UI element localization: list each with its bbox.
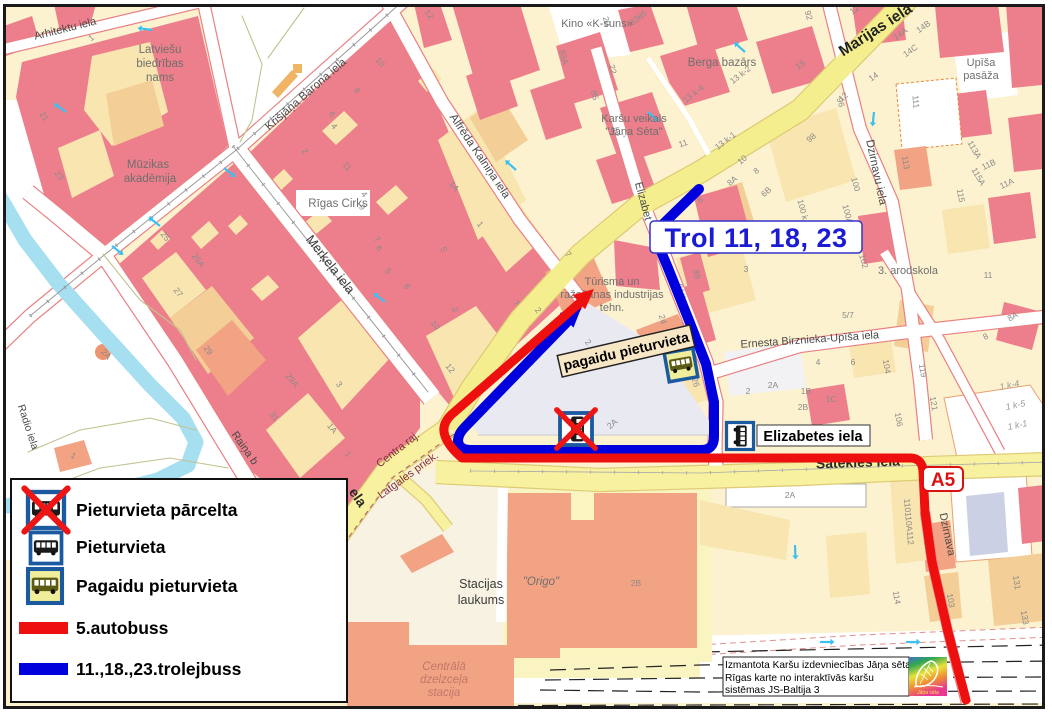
svg-text:4: 4	[816, 357, 821, 367]
svg-text:1C: 1C	[826, 394, 837, 404]
svg-text:2B: 2B	[631, 578, 642, 588]
svg-text:Kino «K-suns»: Kino «K-suns»	[561, 18, 633, 30]
svg-text:A5: A5	[931, 470, 956, 491]
svg-text:111: 111	[910, 95, 921, 109]
svg-text:Karšu veikals: Karšu veikals	[601, 113, 667, 125]
svg-text:Trol 11, 18, 23: Trol 11, 18, 23	[664, 223, 847, 253]
svg-text:11.,18.,23.trolejbuss: 11.,18.,23.trolejbuss	[76, 659, 242, 679]
svg-text:sistēmas JS-Baltija 3: sistēmas JS-Baltija 3	[725, 685, 820, 696]
svg-text:pasāža: pasāža	[963, 70, 999, 82]
svg-text:Pieturvieta: Pieturvieta	[76, 537, 166, 557]
svg-text:2B: 2B	[798, 402, 809, 412]
svg-text:Tūrisma un: Tūrisma un	[584, 276, 639, 288]
svg-text:Upīša: Upīša	[967, 57, 997, 69]
svg-text:6: 6	[851, 357, 856, 367]
svg-text:biedrības: biedrības	[136, 58, 184, 70]
svg-text:Stacijas: Stacijas	[459, 577, 503, 591]
svg-text:Rīgas Cirks: Rīgas Cirks	[308, 198, 368, 210]
svg-text:5/7: 5/7	[842, 310, 854, 320]
svg-text:Rīgas karte no interaktīvās ka: Rīgas karte no interaktīvās karšu	[725, 673, 874, 684]
svg-text:1B: 1B	[801, 386, 812, 396]
svg-text:stacija: stacija	[428, 687, 461, 699]
svg-text:Berga bazārs: Berga bazārs	[688, 57, 757, 69]
svg-text:Jāņa sēta: Jāņa sēta	[916, 690, 939, 696]
svg-text:nams: nams	[146, 72, 174, 84]
svg-text:2: 2	[746, 386, 751, 396]
svg-text:"Origo": "Origo"	[523, 576, 560, 588]
svg-text:dzelzceļa: dzelzceļa	[420, 674, 468, 686]
svg-text:Centrālā: Centrālā	[422, 661, 465, 673]
svg-text:5.autobuss: 5.autobuss	[76, 618, 169, 638]
svg-text:11: 11	[984, 270, 993, 280]
svg-text:Latviešu: Latviešu	[139, 44, 182, 56]
svg-text:Izmantota Karšu izdevniecības: Izmantota Karšu izdevniecības Jāņa sēta	[725, 660, 911, 671]
svg-text:Pagaidu pieturvieta: Pagaidu pieturvieta	[76, 576, 238, 596]
svg-text:Mūzikas: Mūzikas	[127, 159, 169, 171]
svg-text:laukums: laukums	[458, 593, 505, 607]
svg-text:tehn.: tehn.	[600, 302, 624, 314]
svg-text:2A: 2A	[768, 380, 779, 390]
svg-text:Pieturvieta pārcelta: Pieturvieta pārcelta	[76, 500, 238, 520]
svg-text:3: 3	[744, 264, 749, 274]
svg-text:3. arodskola: 3. arodskola	[878, 265, 939, 277]
svg-text:2A: 2A	[785, 490, 796, 500]
svg-text:"Jāņa Sēta": "Jāņa Sēta"	[605, 126, 662, 138]
svg-text:akadēmija: akadēmija	[124, 173, 177, 185]
svg-text:Elizabetes iela: Elizabetes iela	[763, 429, 863, 445]
